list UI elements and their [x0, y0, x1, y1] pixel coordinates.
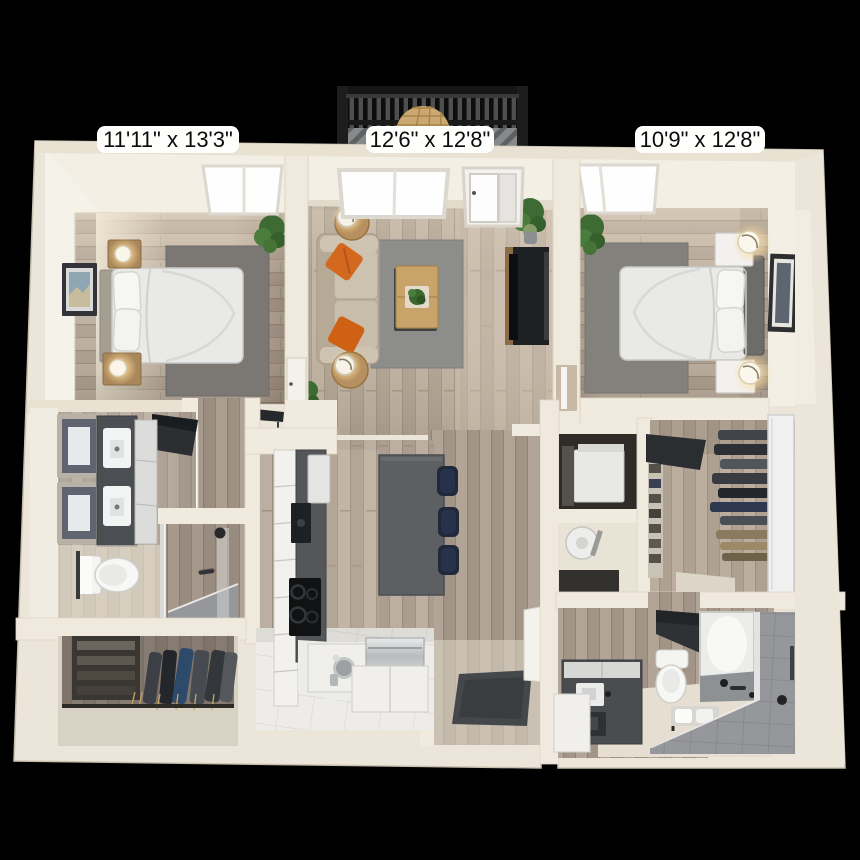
svg-text:11'11" x 13'3": 11'11" x 13'3" — [103, 127, 233, 152]
svg-text:12'6" x 12'8": 12'6" x 12'8" — [370, 127, 491, 152]
svg-text:10'9" x 12'8": 10'9" x 12'8" — [640, 127, 761, 152]
